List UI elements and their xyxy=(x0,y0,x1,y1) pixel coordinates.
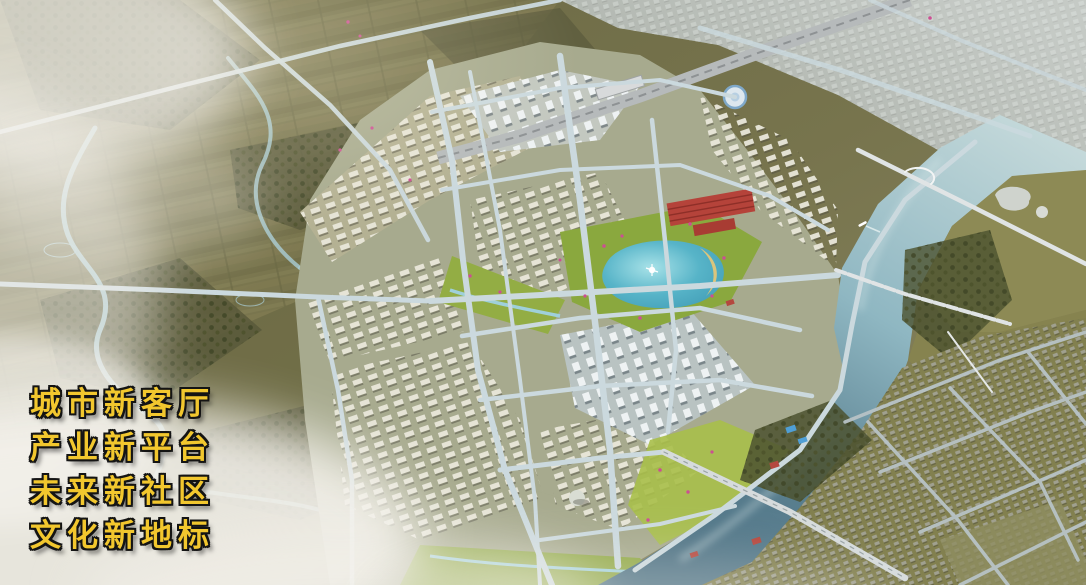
city-aerial-render xyxy=(0,0,1086,585)
aerial-render-page: 城市新客厅 产业新平台 未来新社区 文化新地标 xyxy=(0,0,1086,585)
central-lake xyxy=(602,241,724,309)
